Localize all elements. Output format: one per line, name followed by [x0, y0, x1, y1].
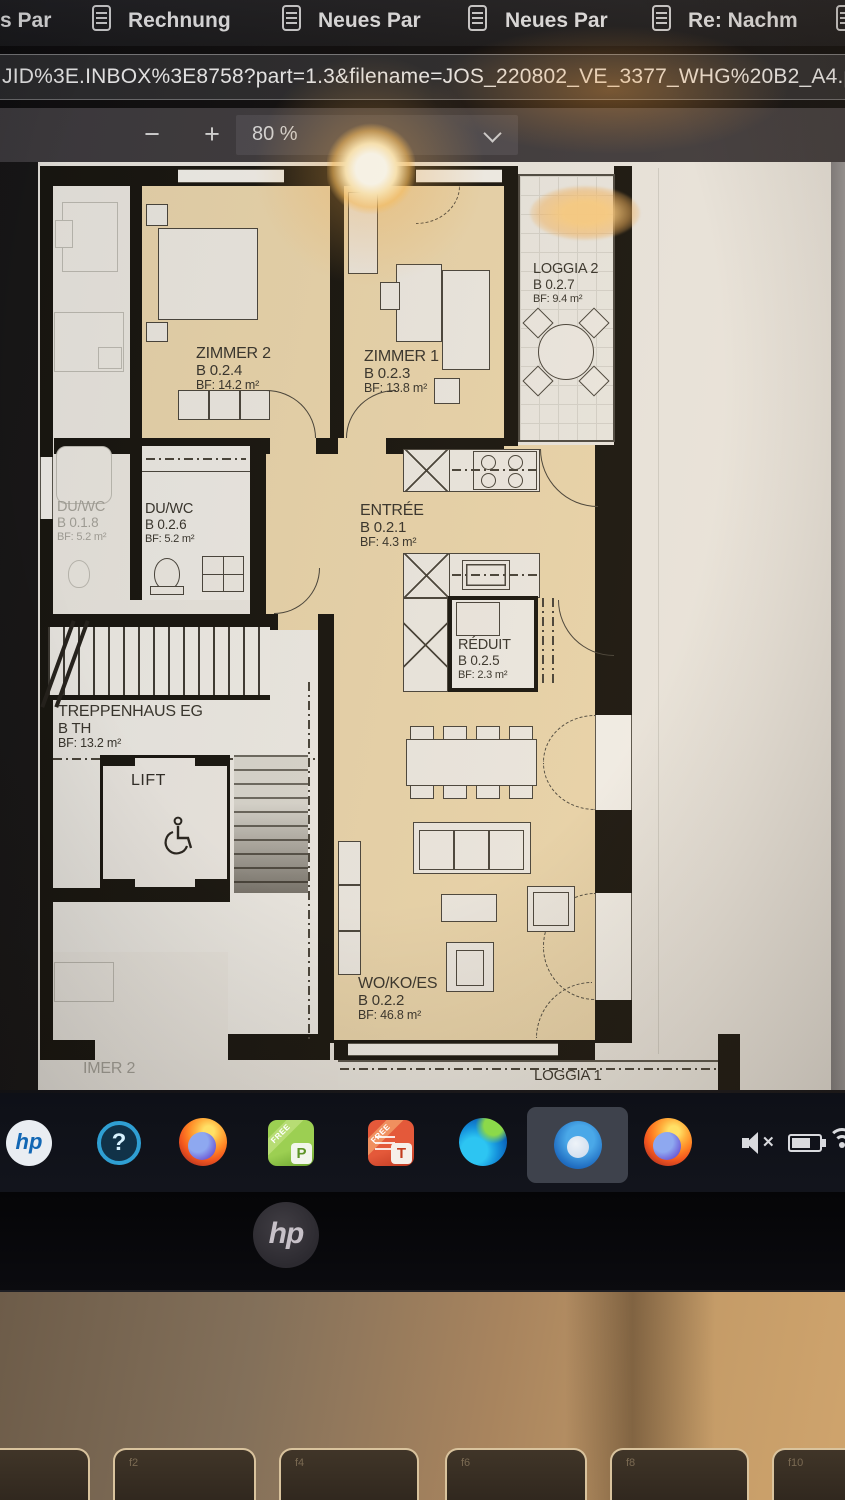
room-label-duwc-neighbor: DU/WC B 0.1.8 BF: 5.2 m² — [57, 500, 106, 543]
bed — [158, 228, 258, 320]
letter-t: T — [391, 1143, 412, 1164]
sofa-cushion — [489, 830, 524, 870]
chair — [380, 282, 400, 310]
nightstand — [146, 204, 168, 226]
room-code: B 0.2.6 — [145, 518, 194, 533]
freeoffice-presentations-icon[interactable]: FREE P — [268, 1120, 314, 1166]
room-name: LOGGIA 1 — [534, 1068, 602, 1085]
dining-chair — [509, 785, 533, 799]
room-code: B 0.2.7 — [533, 278, 598, 293]
bathtub — [56, 446, 112, 504]
tab-strip: s Par Rechnung Neues Par Neues Par Re: N… — [0, 0, 845, 46]
section-line — [340, 1068, 716, 1070]
room-name: DU/WC — [57, 500, 106, 516]
burner — [508, 455, 523, 470]
hp-support-icon[interactable]: hp — [6, 1120, 52, 1166]
dining-chair — [410, 785, 434, 799]
keyboard-key: f10 — [772, 1448, 845, 1500]
room-label-loggia2: LOGGIA 2 B 0.2.7 BF: 9.4 m² — [533, 262, 598, 305]
lift-shaft: LIFT — [100, 755, 230, 890]
door-opening — [278, 614, 318, 630]
room-code: B 0.1.8 — [57, 516, 106, 531]
room-area: BF: 5.2 m² — [145, 533, 194, 545]
room-area: BF: 14.2 m² — [196, 379, 271, 393]
window — [595, 893, 632, 1000]
laptop-bezel — [0, 1192, 845, 1292]
wardrobe — [348, 192, 378, 274]
sofa-cushion — [454, 830, 489, 870]
thunderbird-envelope — [567, 1136, 589, 1158]
appliance — [456, 602, 500, 636]
wardrobe-divider — [208, 390, 210, 420]
wall — [718, 1034, 740, 1093]
armchair-seat — [456, 950, 484, 986]
dining-chair — [410, 726, 434, 740]
room-label-duwc: DU/WC B 0.2.6 BF: 5.2 m² — [145, 502, 194, 545]
sideboard — [338, 841, 361, 975]
battery-fill — [792, 1138, 810, 1148]
coffee-table — [441, 894, 497, 922]
room-area: BF: 4.3 m² — [360, 536, 424, 550]
room-name: RÉDUIT — [458, 638, 511, 654]
bed — [442, 270, 490, 370]
keyboard-key: f8 — [610, 1448, 749, 1500]
lift-door-cap — [103, 879, 135, 887]
wall — [318, 614, 334, 1043]
window — [416, 169, 502, 183]
shower-tray — [202, 556, 244, 592]
battery-nub — [822, 1139, 826, 1147]
keyboard-key: f1 — [0, 1448, 90, 1500]
message-icon — [282, 5, 301, 31]
lift-door-cap — [195, 758, 227, 766]
zoom-out-button[interactable]: − — [132, 116, 172, 154]
room-area: BF: 5.2 m² — [57, 531, 106, 543]
burner — [481, 455, 496, 470]
thunderbird-icon[interactable] — [554, 1121, 602, 1169]
room-code: B 0.2.5 — [458, 654, 511, 669]
chevron-down-icon — [483, 124, 501, 142]
lift-label: LIFT — [131, 772, 166, 790]
firefox-icon[interactable] — [179, 1118, 227, 1166]
dining-chair — [443, 726, 467, 740]
room-name: ZIMMER 1 — [364, 348, 439, 366]
mute-x: ✕ — [762, 1133, 775, 1151]
dining-chair — [476, 785, 500, 799]
room-area: BF: 13.8 m² — [364, 382, 439, 396]
wall — [504, 166, 518, 446]
sideboard-divider — [338, 930, 361, 932]
dining-chair — [476, 726, 500, 740]
counter-centerline — [452, 469, 538, 471]
room-loggia1 — [338, 1060, 718, 1093]
pdf-page: LIFT ZIMMER 2 B 0.2.4 BF: 14.2 m² ZIMMER… — [38, 162, 831, 1093]
burner — [508, 473, 523, 488]
room-label-loggia1: LOGGIA 1 — [534, 1068, 602, 1085]
wifi-icon[interactable] — [828, 1128, 845, 1158]
room-area: BF: 2.3 m² — [458, 669, 511, 681]
room-name: IMER 2 — [83, 1060, 135, 1078]
plan-outline — [658, 168, 659, 1054]
lift-door-cap — [195, 879, 227, 887]
room-label-zimmer2: ZIMMER 2 B 0.2.4 BF: 14.2 m² — [196, 345, 271, 393]
chair — [55, 220, 73, 248]
volume-muted-icon[interactable]: ✕ — [742, 1130, 778, 1156]
keyboard-key: f2 — [113, 1448, 256, 1500]
letter-p: P — [291, 1143, 312, 1164]
wall — [40, 1040, 95, 1060]
divider — [0, 46, 845, 54]
thunderbird-active-highlight[interactable] — [527, 1107, 628, 1183]
room-name: DU/WC — [145, 502, 194, 518]
furniture — [54, 962, 114, 1002]
burner — [481, 473, 496, 488]
room-name: ENTRÉE — [360, 502, 424, 520]
counter-centerline — [452, 574, 538, 576]
keyboard-key: f4 — [279, 1448, 419, 1500]
section-line — [308, 682, 310, 1040]
window — [348, 1043, 558, 1056]
round-table — [538, 324, 594, 380]
battery-icon[interactable] — [788, 1134, 822, 1152]
tab-neues-2[interactable]: Neues Par — [505, 9, 608, 33]
firefox-globe — [188, 1132, 216, 1160]
doc-line — [375, 1136, 395, 1138]
wardrobe — [178, 390, 270, 420]
room-name: LOGGIA 2 — [533, 262, 598, 278]
wall — [48, 888, 230, 902]
tab-neues-1[interactable]: Neues Par — [318, 9, 421, 33]
tall-cabinet — [403, 449, 450, 492]
room-code: B TH — [58, 721, 203, 738]
door-opening — [338, 438, 386, 454]
windows-taskbar: hp ? FREE P FREE T ✕ — [0, 1090, 845, 1192]
wheelchair-icon — [161, 816, 195, 856]
room-code: B 0.2.4 — [196, 363, 271, 380]
window — [178, 169, 284, 183]
url-bar[interactable]: JID%3E.INBOX%3E8758?part=1.3&filename=JO… — [0, 54, 845, 100]
nightstand — [98, 347, 122, 369]
zoom-in-button[interactable]: + — [192, 116, 232, 154]
hp-logo: hp — [253, 1202, 319, 1268]
viewer-background — [0, 162, 38, 1093]
room-name: ZIMMER 2 — [196, 345, 271, 363]
room-area: BF: 46.8 m² — [358, 1009, 437, 1023]
wall — [228, 1034, 330, 1060]
window — [595, 715, 632, 810]
laptop-photo: s Par Rechnung Neues Par Neues Par Re: N… — [0, 0, 845, 1500]
divider — [0, 100, 845, 108]
lift-door-cap — [103, 758, 135, 766]
room-label-treppenhaus: TREPPENHAUS EG B TH BF: 13.2 m² — [58, 703, 203, 751]
toilet — [68, 560, 90, 588]
tab-rechnung[interactable]: Rechnung — [128, 9, 231, 33]
room-label-wokoes: WO/KO/ES B 0.2.2 BF: 46.8 m² — [358, 975, 437, 1023]
tall-cabinet — [403, 598, 448, 692]
wall — [250, 445, 266, 617]
message-icon — [468, 5, 487, 31]
window — [40, 457, 53, 519]
stairs — [234, 755, 308, 893]
speaker-cone — [746, 1132, 758, 1154]
counter-centerline — [146, 458, 246, 460]
tab-re-nachm[interactable]: Re: Nachm — [688, 9, 798, 33]
freeoffice-textmaker-icon[interactable]: FREE T — [368, 1120, 414, 1166]
help-icon[interactable]: ? — [97, 1121, 141, 1165]
room-name: TREPPENHAUS EG — [58, 703, 203, 721]
sofa-cushion — [419, 830, 454, 870]
zoom-level-select[interactable]: 80 % — [236, 115, 518, 155]
room-code: B 0.2.3 — [364, 366, 439, 383]
desk — [396, 264, 442, 342]
wall — [330, 186, 344, 446]
tall-cabinet — [403, 553, 450, 598]
keyboard-key: f6 — [445, 1448, 587, 1500]
scrollbar[interactable] — [831, 162, 845, 1093]
room-code: B 0.2.2 — [358, 993, 437, 1010]
message-icon — [652, 5, 671, 31]
room-label-entree: ENTRÉE B 0.2.1 BF: 4.3 m² — [360, 502, 424, 550]
room-code: B 0.2.1 — [360, 520, 424, 537]
armchair-seat — [533, 892, 569, 926]
firefox-globe — [653, 1132, 681, 1160]
wall — [40, 166, 53, 1060]
dining-table — [406, 739, 537, 786]
opening-line — [552, 598, 554, 686]
tab-partial-left[interactable]: s Par — [0, 9, 51, 33]
opening-line — [542, 598, 544, 686]
room-label-zimmer1: ZIMMER 1 B 0.2.3 BF: 13.8 m² — [364, 348, 439, 396]
url-text: JID%3E.INBOX%3E8758?part=1.3&filename=JO… — [2, 65, 845, 89]
toilet-tank — [150, 586, 184, 595]
wifi-dot — [839, 1142, 845, 1148]
zoom-level-value: 80 % — [252, 123, 298, 146]
dining-chair — [509, 726, 533, 740]
room-name: WO/KO/ES — [358, 975, 437, 993]
room-label-reduit: RÉDUIT B 0.2.5 BF: 2.3 m² — [458, 638, 511, 681]
message-icon — [92, 5, 111, 31]
edge-icon[interactable] — [459, 1118, 507, 1166]
wall — [130, 186, 142, 600]
room-area: BF: 9.4 m² — [533, 293, 598, 305]
wardrobe-divider — [239, 390, 241, 420]
sideboard-divider — [338, 884, 361, 886]
dining-chair — [443, 785, 467, 799]
firefox-icon[interactable] — [644, 1118, 692, 1166]
room-label-neighbor-partial: IMER 2 — [83, 1060, 135, 1078]
nightstand — [146, 322, 168, 342]
room-area: BF: 13.2 m² — [58, 737, 203, 751]
wall — [614, 166, 632, 446]
pdf-toolbar: − + 80 % — [0, 108, 845, 162]
message-icon — [836, 5, 845, 31]
room-loggia2 — [518, 174, 615, 442]
door-opening — [270, 438, 316, 454]
